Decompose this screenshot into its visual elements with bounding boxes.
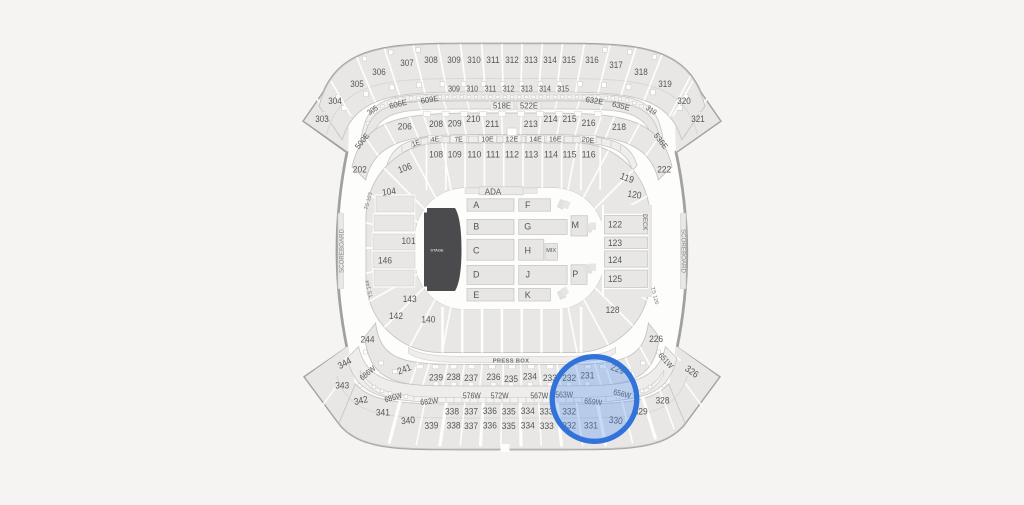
svg-text:333: 333 — [540, 421, 554, 432]
svg-text:317: 317 — [609, 60, 623, 70]
svg-text:319: 319 — [658, 79, 672, 89]
svg-text:308: 308 — [424, 55, 438, 65]
svg-text:572W: 572W — [491, 392, 509, 401]
svg-text:340: 340 — [401, 415, 416, 427]
svg-text:A: A — [473, 200, 479, 210]
svg-text:114: 114 — [544, 149, 558, 160]
svg-text:10E: 10E — [481, 134, 494, 143]
svg-text:E: E — [473, 290, 479, 300]
svg-text:244: 244 — [361, 335, 375, 346]
svg-text:343: 343 — [335, 380, 349, 391]
svg-text:311: 311 — [486, 55, 500, 65]
svg-text:315: 315 — [562, 55, 576, 65]
svg-text:239: 239 — [429, 373, 443, 384]
svg-text:304: 304 — [328, 96, 342, 106]
svg-text:314: 314 — [543, 55, 557, 65]
svg-text:J: J — [525, 270, 530, 280]
svg-text:336: 336 — [483, 406, 497, 417]
svg-text:146: 146 — [378, 256, 392, 267]
svg-text:120: 120 — [627, 189, 642, 202]
svg-text:305: 305 — [350, 79, 364, 89]
svg-text:SCOREBOARD: SCOREBOARD — [679, 229, 686, 274]
svg-text:238: 238 — [447, 372, 461, 383]
svg-text:MIX: MIX — [546, 248, 556, 254]
svg-text:213: 213 — [524, 119, 538, 130]
svg-text:202: 202 — [353, 165, 367, 176]
svg-text:339: 339 — [424, 420, 439, 432]
svg-text:307: 307 — [400, 58, 414, 68]
svg-text:124: 124 — [608, 255, 622, 266]
svg-text:336: 336 — [483, 421, 497, 432]
svg-text:115: 115 — [563, 149, 577, 160]
svg-text:218: 218 — [612, 122, 626, 133]
svg-text:14E: 14E — [529, 134, 542, 143]
svg-text:211: 211 — [485, 119, 499, 130]
svg-text:G: G — [524, 222, 531, 232]
svg-text:K: K — [525, 290, 531, 300]
svg-text:237: 237 — [464, 373, 478, 384]
svg-text:316: 316 — [585, 55, 599, 65]
svg-text:110: 110 — [467, 149, 481, 160]
svg-text:321: 321 — [691, 114, 705, 124]
svg-text:111: 111 — [486, 149, 500, 160]
svg-text:D: D — [473, 270, 480, 280]
svg-text:315: 315 — [557, 84, 569, 93]
svg-text:B: B — [473, 222, 479, 232]
svg-text:306: 306 — [372, 67, 386, 77]
svg-text:310: 310 — [466, 84, 478, 93]
svg-text:116: 116 — [582, 149, 596, 160]
svg-text:PRESS BOX: PRESS BOX — [493, 358, 530, 364]
svg-text:M: M — [572, 220, 580, 230]
svg-text:226: 226 — [649, 334, 663, 345]
svg-text:214: 214 — [544, 114, 558, 125]
svg-text:314: 314 — [539, 84, 551, 93]
svg-text:104: 104 — [381, 186, 396, 199]
svg-text:209: 209 — [448, 119, 462, 130]
svg-text:335: 335 — [502, 406, 516, 417]
svg-text:522E: 522E — [520, 102, 538, 111]
svg-text:328: 328 — [656, 395, 670, 406]
svg-text:236: 236 — [487, 372, 501, 383]
svg-text:334: 334 — [521, 406, 535, 417]
svg-text:303: 303 — [315, 114, 329, 124]
svg-text:128: 128 — [606, 305, 620, 316]
svg-text:215: 215 — [563, 114, 577, 125]
svg-text:C: C — [473, 245, 480, 255]
svg-text:SCOREBOARD: SCOREBOARD — [338, 228, 345, 273]
svg-text:518E: 518E — [493, 102, 511, 111]
svg-text:7E: 7E — [454, 135, 463, 145]
svg-text:H: H — [524, 245, 531, 255]
svg-text:P: P — [572, 269, 578, 279]
svg-text:222: 222 — [657, 165, 671, 176]
svg-text:338: 338 — [445, 406, 459, 417]
svg-text:16E: 16E — [549, 134, 562, 143]
svg-text:143: 143 — [403, 294, 417, 305]
svg-text:123: 123 — [608, 238, 622, 249]
svg-text:122: 122 — [608, 220, 622, 231]
svg-text:313: 313 — [521, 84, 533, 93]
svg-text:337: 337 — [464, 421, 478, 432]
svg-text:309: 309 — [448, 84, 460, 93]
svg-text:ADA: ADA — [485, 187, 502, 196]
svg-text:DECK: DECK — [641, 214, 647, 231]
svg-text:112: 112 — [505, 149, 519, 160]
svg-text:101: 101 — [402, 236, 416, 247]
svg-text:312: 312 — [503, 84, 515, 93]
svg-text:337: 337 — [464, 406, 478, 417]
svg-text:318: 318 — [634, 67, 648, 77]
svg-text:F: F — [525, 200, 531, 210]
svg-text:109: 109 — [448, 149, 462, 160]
svg-text:12E: 12E — [506, 134, 519, 143]
svg-text:20E: 20E — [581, 135, 595, 146]
svg-text:310: 310 — [467, 55, 481, 65]
svg-text:206: 206 — [398, 122, 412, 133]
svg-text:335: 335 — [502, 421, 516, 432]
svg-text:210: 210 — [466, 114, 480, 125]
svg-text:567W: 567W — [530, 392, 548, 401]
svg-text:108: 108 — [429, 149, 443, 160]
svg-text:142: 142 — [389, 311, 403, 322]
svg-text:311: 311 — [485, 84, 497, 93]
svg-text:235: 235 — [504, 374, 518, 385]
svg-text:313: 313 — [524, 55, 538, 65]
svg-text:216: 216 — [582, 118, 596, 129]
svg-text:208: 208 — [429, 119, 443, 130]
svg-text:334: 334 — [521, 421, 535, 432]
svg-text:234: 234 — [523, 372, 537, 383]
svg-text:STAGE: STAGE — [430, 248, 444, 253]
svg-text:125: 125 — [608, 274, 622, 285]
svg-text:4E: 4E — [430, 134, 440, 144]
svg-text:140: 140 — [421, 314, 435, 325]
svg-text:341: 341 — [376, 408, 390, 419]
svg-text:320: 320 — [677, 96, 691, 106]
svg-text:338: 338 — [447, 421, 461, 432]
svg-text:113: 113 — [524, 149, 538, 160]
svg-text:312: 312 — [505, 55, 519, 65]
svg-text:309: 309 — [447, 55, 461, 65]
svg-text:576W: 576W — [463, 392, 481, 401]
